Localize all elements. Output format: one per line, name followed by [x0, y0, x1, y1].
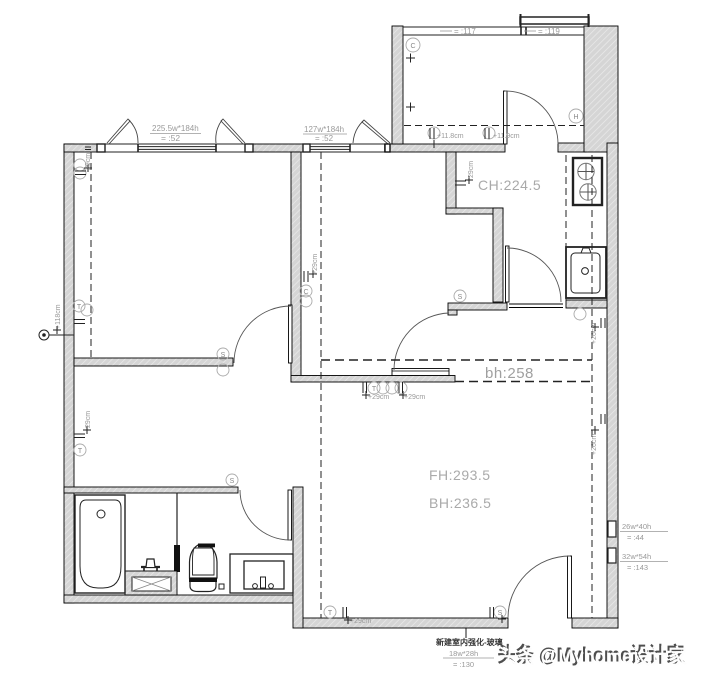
svg-text:= :119: = :119: [538, 27, 560, 36]
svg-text:T: T: [78, 448, 83, 455]
svg-text:+11.9cm: +11.9cm: [493, 133, 520, 140]
svg-text:+29cm: +29cm: [404, 394, 425, 401]
svg-text:26w*40h: 26w*40h: [622, 522, 651, 531]
svg-text:+26cm: +26cm: [591, 434, 598, 455]
svg-text:C: C: [303, 289, 308, 296]
svg-text:H: H: [573, 114, 578, 121]
svg-text:S: S: [230, 478, 235, 485]
svg-text:bh:258: bh:258: [485, 365, 534, 382]
svg-text:18w*28h: 18w*28h: [449, 649, 478, 658]
svg-text:+29cm: +29cm: [350, 618, 371, 625]
svg-text:新建室内强化-玻璃: 新建室内强化-玻璃: [436, 637, 503, 647]
svg-text:头条 @Myhome设计家: 头条 @Myhome设计家: [500, 645, 687, 669]
svg-text:225.5w*184h: 225.5w*184h: [152, 124, 199, 133]
svg-text:= :117: = :117: [454, 27, 476, 36]
svg-text:S: S: [458, 294, 463, 301]
svg-text:+26cm: +26cm: [591, 323, 598, 344]
svg-text:29cm: 29cm: [468, 161, 475, 178]
svg-text:+11.8cm: +11.8cm: [437, 133, 464, 140]
svg-text:= :52: = :52: [315, 134, 334, 143]
svg-text:29cm: 29cm: [85, 411, 92, 428]
svg-text:= :130: = :130: [453, 660, 474, 669]
svg-text:32w*54h: 32w*54h: [622, 552, 651, 561]
svg-text:S: S: [221, 352, 226, 359]
svg-text:CH:224.5: CH:224.5: [478, 177, 541, 193]
svg-text:29cm: 29cm: [85, 153, 92, 170]
svg-text:FH:293.5: FH:293.5: [429, 467, 491, 483]
svg-text:= :143: = :143: [627, 563, 648, 572]
svg-text:T: T: [328, 610, 333, 617]
svg-text:127w*184h: 127w*184h: [304, 125, 344, 134]
svg-text:C: C: [410, 43, 415, 50]
svg-text:BH:236.5: BH:236.5: [429, 495, 491, 511]
svg-text:+118cm: +118cm: [55, 304, 62, 329]
svg-text:T: T: [77, 304, 82, 311]
svg-text:= :52: = :52: [161, 133, 180, 143]
svg-text:T: T: [372, 386, 377, 393]
svg-text:+29cm: +29cm: [312, 254, 319, 275]
svg-text:+29cm: +29cm: [368, 394, 389, 401]
svg-text:= :44: = :44: [627, 533, 644, 542]
